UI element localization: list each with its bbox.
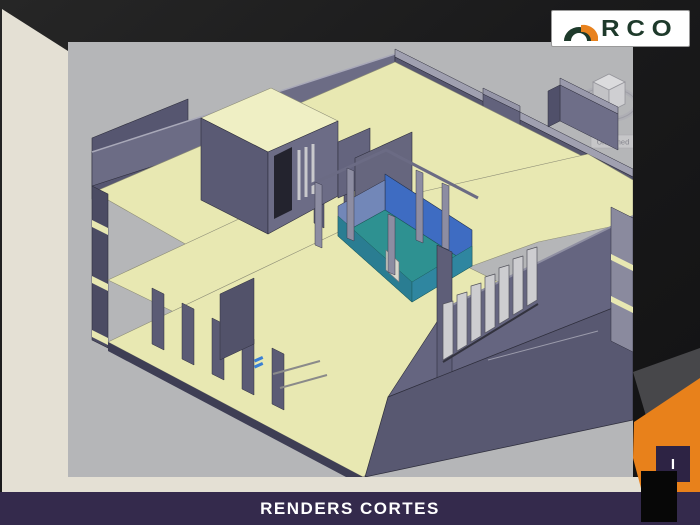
presentation-slide: S Unnamed [0,0,700,525]
arch-icon [562,14,598,44]
left-accent-band [2,0,68,492]
bottom-accent-strip [2,477,652,492]
penthouse-door [274,147,292,219]
building-render: S Unnamed [68,42,633,477]
section-cut-wall [92,186,108,348]
page-marker-label: I [671,457,675,472]
arco-logo: RCO [551,10,690,47]
building-model [92,49,633,477]
slide-title: RENDERS CORTES [260,499,440,519]
logo-text: RCO [601,17,678,40]
footer-banner: RENDERS CORTES [0,492,700,525]
black-block [641,471,677,522]
cad-viewport: S Unnamed [68,42,633,477]
